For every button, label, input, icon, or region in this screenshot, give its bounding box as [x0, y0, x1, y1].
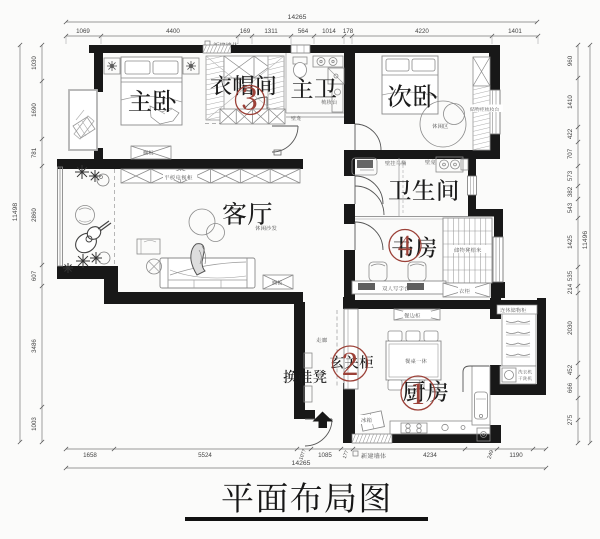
svg-text:1311: 1311	[264, 28, 278, 35]
svg-text:11498: 11498	[12, 203, 19, 222]
svg-text:452: 452	[567, 364, 574, 375]
svg-text:11496: 11496	[582, 231, 589, 250]
svg-text:1003: 1003	[31, 417, 38, 431]
svg-text:178: 178	[343, 28, 354, 35]
svg-text:666: 666	[567, 382, 574, 393]
svg-text:543: 543	[567, 202, 574, 213]
svg-text:1014: 1014	[322, 28, 336, 35]
svg-text:169: 169	[240, 28, 251, 35]
svg-text:5524: 5524	[198, 452, 212, 459]
svg-text:1030: 1030	[31, 56, 38, 70]
svg-text:214: 214	[567, 283, 574, 294]
svg-text:422: 422	[567, 128, 574, 139]
svg-text:535: 535	[567, 270, 574, 281]
svg-text:607: 607	[31, 270, 38, 281]
svg-text:1690: 1690	[31, 103, 38, 117]
svg-text:1658: 1658	[83, 452, 97, 459]
svg-text:1410: 1410	[567, 95, 574, 109]
svg-text:14265: 14265	[292, 460, 311, 467]
svg-text:2030: 2030	[567, 321, 574, 335]
svg-text:1425: 1425	[567, 235, 574, 249]
svg-text:1069: 1069	[76, 28, 90, 35]
svg-text:275: 275	[567, 414, 574, 425]
svg-text:3486: 3486	[31, 339, 38, 353]
svg-text:707: 707	[567, 148, 574, 159]
svg-text:1190: 1190	[509, 452, 523, 459]
svg-text:1085: 1085	[318, 452, 332, 459]
svg-text:564: 564	[298, 28, 309, 35]
svg-text:2860: 2860	[31, 208, 38, 222]
svg-text:1401: 1401	[508, 28, 522, 35]
svg-text:14265: 14265	[288, 14, 307, 21]
svg-text:4234: 4234	[423, 452, 437, 459]
svg-text:960: 960	[567, 55, 574, 66]
svg-text:4400: 4400	[166, 28, 180, 35]
svg-text:573: 573	[567, 170, 574, 181]
svg-text:4220: 4220	[415, 28, 429, 35]
svg-text:781: 781	[31, 147, 38, 158]
svg-text:382: 382	[567, 186, 574, 197]
